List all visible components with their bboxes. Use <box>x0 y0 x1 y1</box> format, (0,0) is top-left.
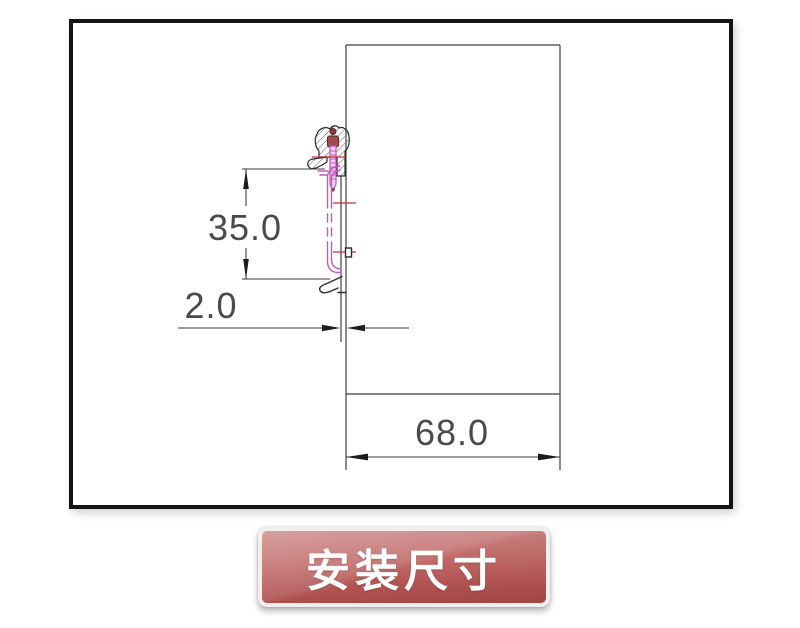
caption-text: 安装尺寸 <box>306 535 502 599</box>
drawing-frame <box>69 19 733 509</box>
product-image-canvas: 35.0 2.0 68.0 安装尺寸 <box>0 0 800 628</box>
caption-banner: 安装尺寸 <box>258 527 550 607</box>
caption-banner-face: 安装尺寸 <box>262 531 546 603</box>
